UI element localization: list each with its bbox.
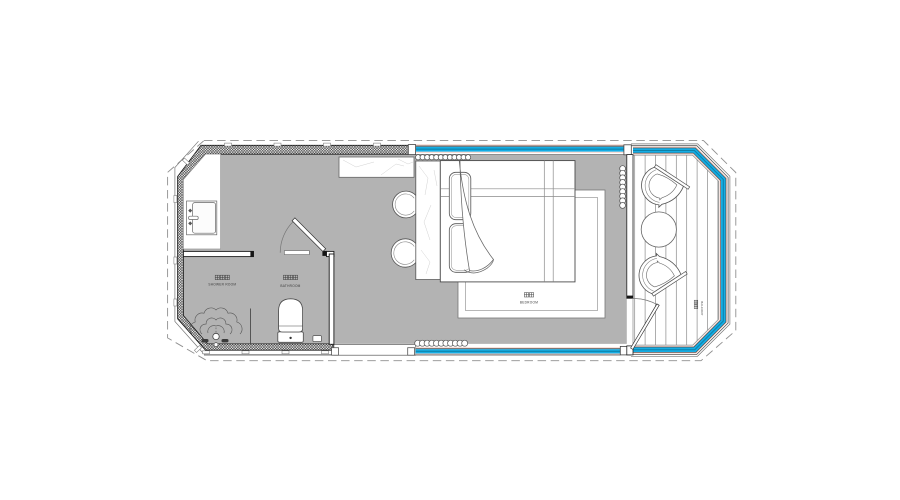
svg-text:BALCONY: BALCONY	[700, 301, 704, 315]
svg-text:SHOWER ROOM: SHOWER ROOM	[208, 283, 236, 287]
svg-text:BEDROOM: BEDROOM	[520, 301, 538, 305]
svg-text:BATHROOM: BATHROOM	[280, 284, 300, 288]
